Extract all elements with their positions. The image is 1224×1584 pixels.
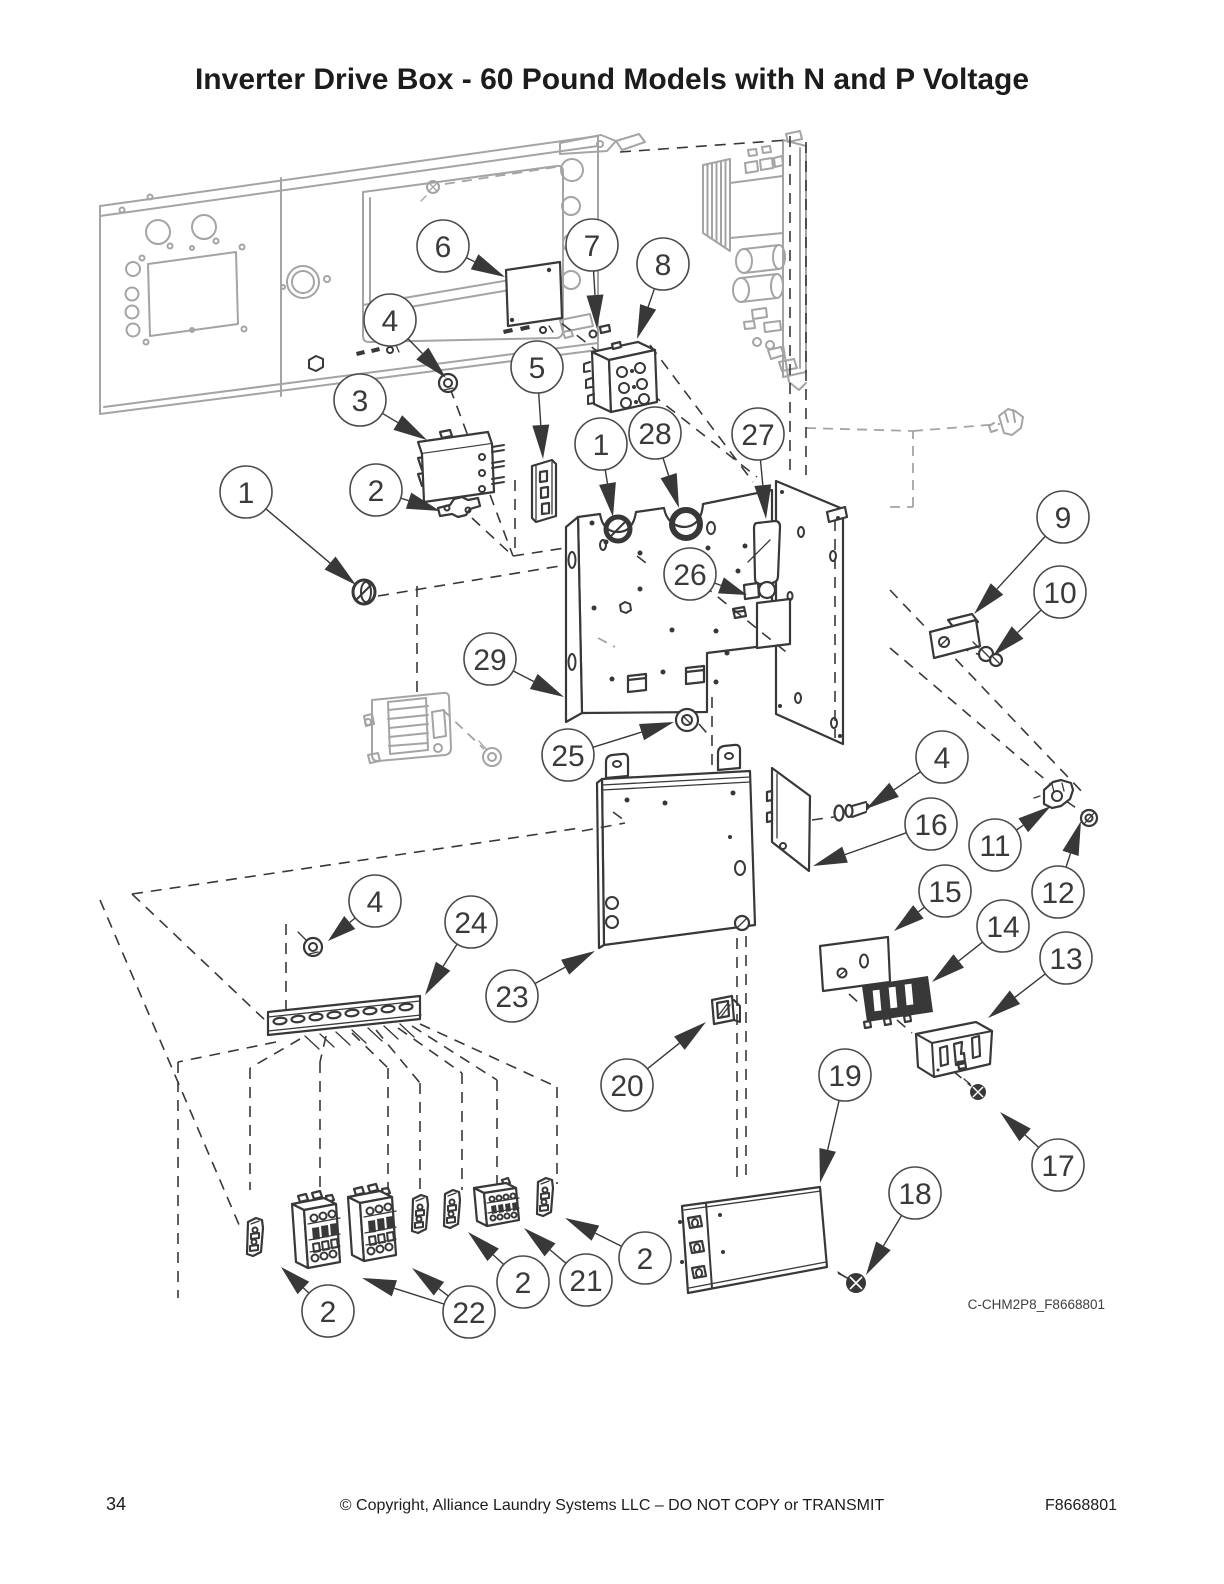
part-25-screw (676, 709, 698, 731)
part-2-clip-a (247, 1218, 263, 1256)
part-2-clip-c (444, 1190, 460, 1228)
part-22-contactor-a (292, 1191, 340, 1268)
svg-text:4: 4 (367, 886, 384, 919)
callout-8: 8 (637, 238, 689, 339)
part-5-rail (532, 460, 556, 522)
svg-text:3: 3 (352, 385, 369, 418)
callout-29: 29 (464, 633, 564, 697)
svg-text:2: 2 (368, 475, 385, 508)
callout-4: 4 (866, 731, 968, 809)
callout-19: 19 (819, 1049, 871, 1183)
svg-text:1: 1 (593, 429, 610, 462)
svg-text:18: 18 (898, 1178, 931, 1211)
svg-text:8: 8 (655, 249, 672, 282)
svg-text:15: 15 (928, 876, 961, 909)
callout-15: 15 (894, 865, 971, 931)
part-18-screw (838, 1272, 866, 1293)
part-2-clip-d (537, 1178, 553, 1216)
part-12-screw (1081, 810, 1097, 826)
part-19-cover-box (678, 1187, 827, 1293)
svg-text:4: 4 (934, 742, 951, 775)
svg-text:29: 29 (473, 644, 506, 677)
part-13-fuse-holder (916, 1022, 992, 1077)
svg-text:28: 28 (638, 418, 671, 451)
callout-7: 7 (566, 219, 618, 329)
callout-2: 2 (281, 1267, 354, 1337)
callout-5: 5 (511, 341, 563, 459)
callout-17: 17 (1000, 1112, 1084, 1191)
footer-copyright: © Copyright, Alliance Laundry Systems LL… (0, 1497, 1224, 1515)
screw-4-middle (812, 802, 871, 821)
svg-text:22: 22 (452, 1297, 485, 1330)
svg-text:17: 17 (1041, 1150, 1074, 1183)
svg-text:12: 12 (1041, 877, 1074, 910)
part-9-bracket (930, 614, 980, 658)
part-21-contactor (474, 1178, 519, 1226)
part-20-clip (712, 996, 740, 1024)
svg-text:5: 5 (529, 352, 546, 385)
svg-text:11: 11 (979, 830, 1010, 863)
callout-24: 24 (425, 896, 497, 995)
svg-text:7: 7 (584, 230, 601, 263)
figure-code: C-CHM2P8_F8668801 (968, 1297, 1105, 1312)
svg-text:1: 1 (238, 477, 255, 510)
svg-text:9: 9 (1055, 502, 1072, 535)
part-24-din-rail (268, 996, 421, 1049)
callout-18: 18 (866, 1167, 941, 1275)
callout-23: 23 (486, 951, 595, 1022)
svg-text:20: 20 (610, 1070, 643, 1103)
callout-20: 20 (601, 1022, 706, 1111)
callout-4: 4 (328, 875, 401, 941)
part-23-plate (597, 745, 755, 948)
callout-28: 28 (629, 407, 681, 508)
svg-text:6: 6 (435, 231, 452, 264)
svg-text:4: 4 (382, 305, 399, 338)
part-11-clamp (1034, 780, 1073, 808)
part-22-contactor-b (348, 1184, 396, 1261)
svg-text:13: 13 (1049, 943, 1082, 976)
svg-text:26: 26 (673, 559, 706, 592)
part-15-plate (820, 937, 890, 991)
callout-1: 1 (220, 466, 356, 585)
svg-text:16: 16 (914, 809, 947, 842)
callout-10: 10 (993, 566, 1086, 656)
svg-text:14: 14 (986, 911, 1019, 944)
part-3-block (418, 430, 504, 502)
callout-11: 11 (969, 806, 1051, 871)
part-2-clip-b (412, 1195, 428, 1233)
svg-text:27: 27 (741, 419, 774, 452)
svg-text:23: 23 (495, 981, 528, 1014)
callout-1: 1 (575, 418, 627, 517)
callout-4: 4 (364, 294, 446, 378)
manual-page: Inverter Drive Box - 60 Pound Models wit… (0, 0, 1224, 1584)
svg-text:2: 2 (320, 1296, 337, 1329)
svg-text:19: 19 (828, 1060, 861, 1093)
part-16-plate (767, 768, 810, 871)
callout-3: 3 (334, 374, 427, 440)
callout-12: 12 (1032, 821, 1084, 918)
gray-dashed-guides (443, 167, 1000, 749)
part-8-terminal-block (584, 342, 657, 412)
svg-text:2: 2 (515, 1267, 532, 1300)
svg-text:24: 24 (454, 907, 487, 940)
exploded-parts-diagram: 6784531282712910262925416111215141342423… (0, 0, 1224, 1584)
screw-4-lower-left (298, 932, 322, 956)
svg-text:25: 25 (551, 740, 584, 773)
footer-doc-number: F8668801 (1045, 1497, 1117, 1515)
callout-6: 6 (417, 220, 505, 277)
part-29-mounting-plate (566, 490, 790, 722)
svg-text:21: 21 (569, 1265, 602, 1298)
part-17-screw (964, 1079, 986, 1100)
svg-text:10: 10 (1043, 577, 1076, 610)
part-1-grommet-left (353, 580, 375, 604)
callout-22: 22 (362, 1268, 495, 1338)
svg-text:2: 2 (637, 1243, 654, 1276)
